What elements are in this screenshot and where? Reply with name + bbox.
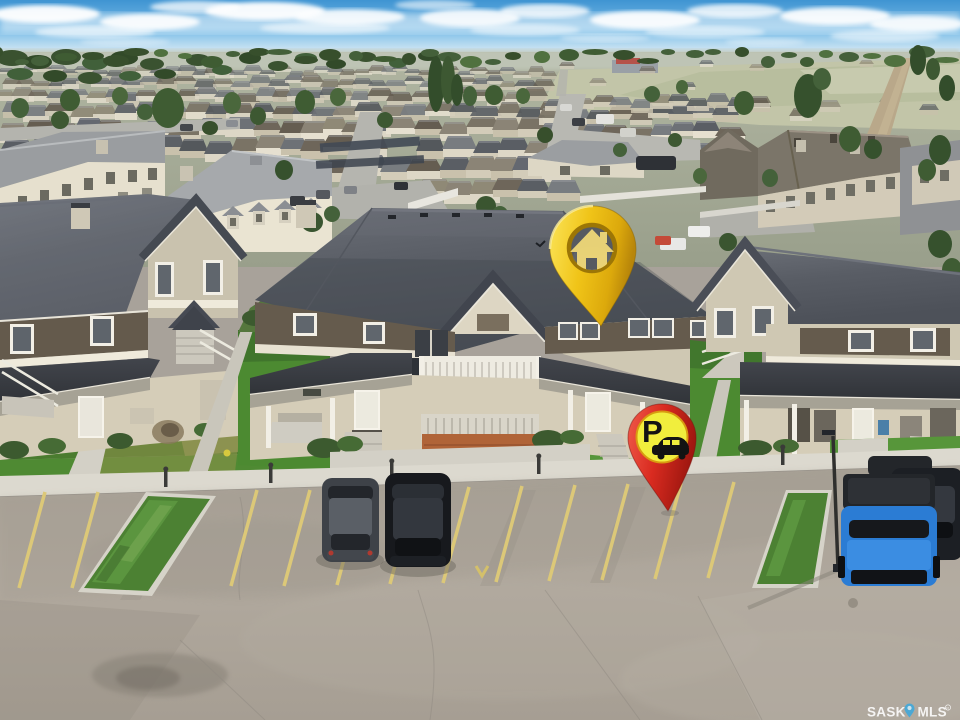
svg-text:R: R	[946, 706, 949, 710]
svg-text:SASK: SASK	[867, 705, 906, 720]
svg-text:MLS: MLS	[918, 705, 947, 720]
